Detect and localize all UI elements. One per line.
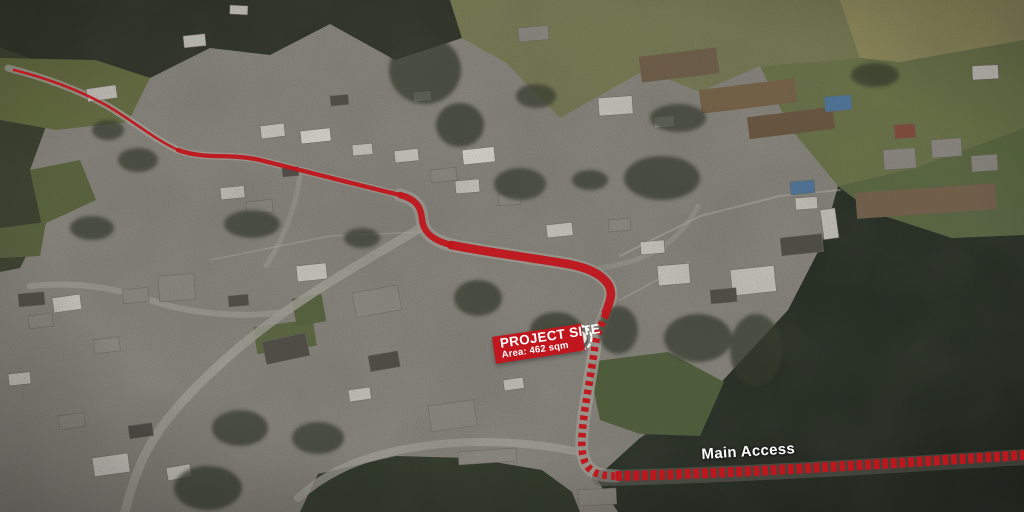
annotated-aerial-map: PROJECT SITE Area: 462 sqm Main Access <box>0 0 1024 512</box>
aerial-photo <box>0 0 1024 512</box>
